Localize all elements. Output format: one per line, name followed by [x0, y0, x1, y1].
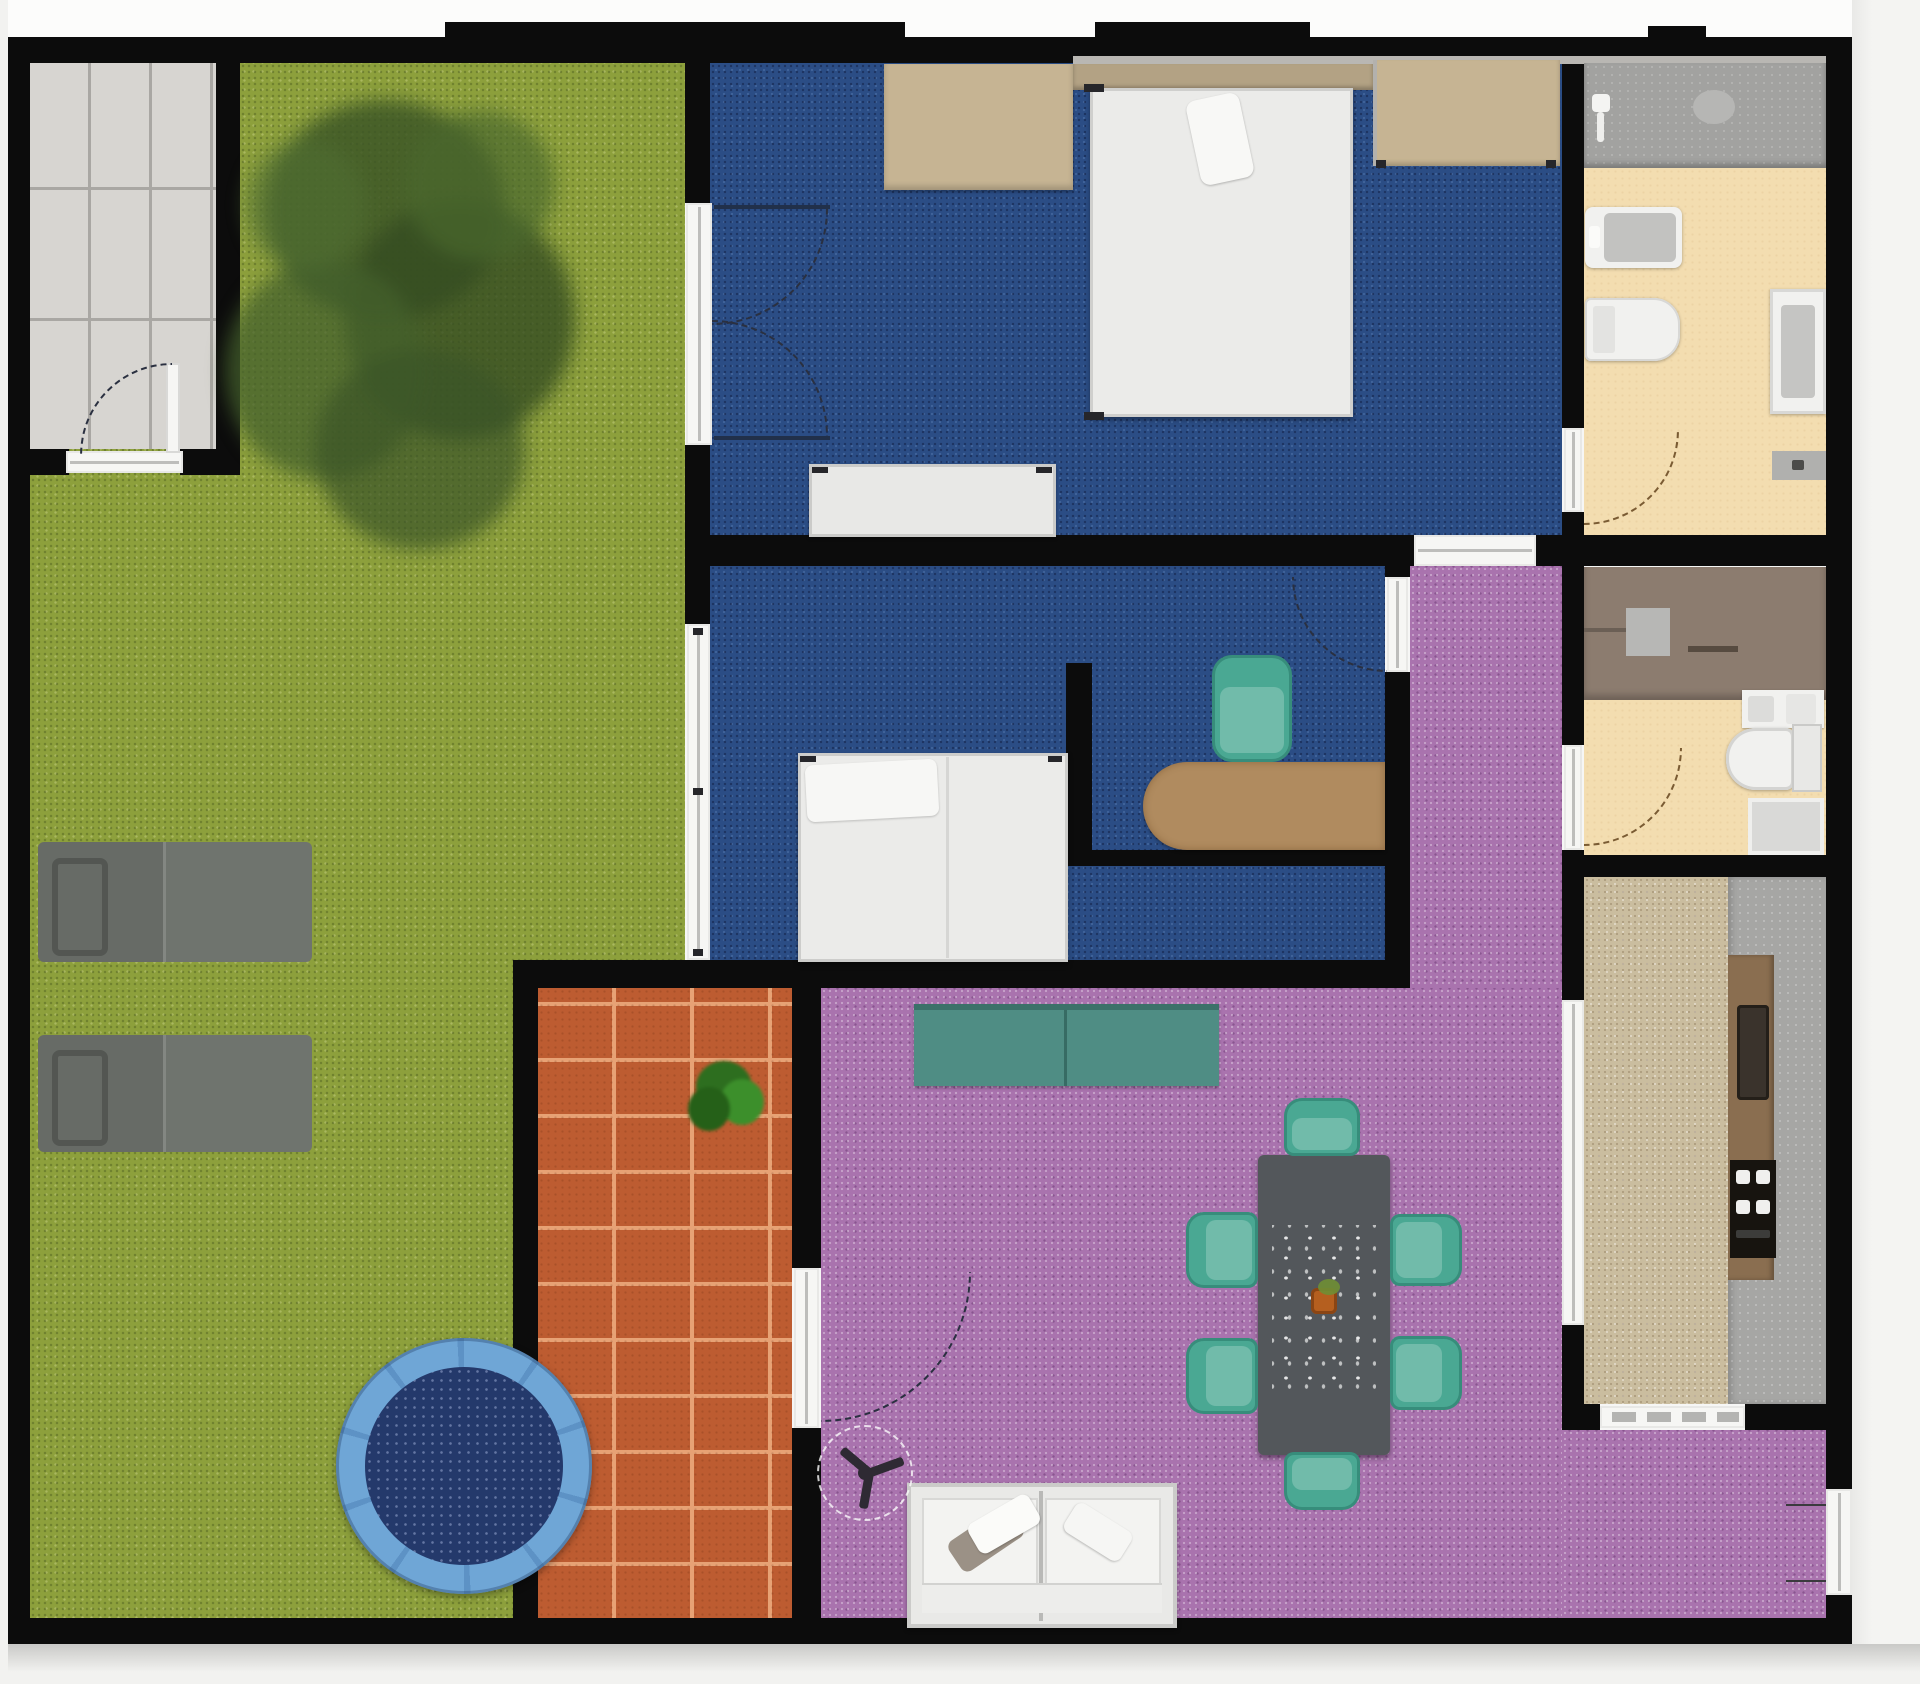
wall-nook-horizontal — [1066, 850, 1385, 866]
bathroom1-door — [1564, 428, 1582, 512]
kitchen-window — [1562, 1000, 1584, 1325]
bed-tick — [1048, 756, 1062, 762]
pool-water — [365, 1367, 563, 1565]
shower-head-icon — [1592, 94, 1610, 112]
bed-tick — [800, 756, 816, 762]
window-sill-line — [1786, 1580, 1826, 1582]
window-sill-line — [1786, 1504, 1826, 1506]
desk-chair — [1212, 655, 1292, 762]
kitchen-sink — [1737, 1005, 1769, 1100]
shed-door — [66, 451, 183, 473]
track-tick — [1717, 1412, 1739, 1422]
bed-tick — [1084, 84, 1104, 92]
shower-unit — [1626, 608, 1670, 656]
margin-top — [0, 0, 1920, 37]
sun-lounger — [38, 842, 312, 962]
bathroom2-door — [1564, 745, 1582, 850]
dining-chair-top — [1284, 1098, 1360, 1156]
wall-shed-bottom — [8, 449, 69, 475]
track-tick — [1647, 1412, 1671, 1422]
teal-bench — [914, 1004, 1219, 1086]
wall-outer-left — [8, 37, 30, 1644]
window-tick — [693, 788, 703, 795]
wall-bathrooms-divider — [1536, 535, 1826, 566]
wall-hallway-left — [1385, 565, 1410, 577]
sun-lounger — [38, 1035, 312, 1152]
wall-bathroom2-kitchen — [1584, 855, 1826, 877]
double-bed — [1090, 88, 1353, 417]
wall-kitchen-bottom — [1562, 1404, 1600, 1430]
floor-plan-canvas — [0, 0, 1920, 1684]
dresser — [884, 64, 1073, 190]
wall-tab — [1095, 22, 1310, 37]
room-hallway — [1410, 566, 1562, 988]
wall-living-top — [513, 960, 1410, 988]
patio-living-door — [794, 1268, 819, 1428]
pillow — [1185, 91, 1256, 186]
track-tick — [1682, 1412, 1706, 1422]
shower-drain — [1693, 90, 1735, 124]
wall-patio-living — [792, 1428, 821, 1618]
towel-bar — [1688, 646, 1738, 652]
bedroom1-french-door — [686, 203, 712, 445]
wall-patio-living — [792, 988, 821, 1268]
ceiling-fan — [817, 1425, 913, 1521]
wall-kitchen-bottom — [1745, 1404, 1826, 1430]
sofa — [907, 1483, 1177, 1628]
patio-plant — [686, 1053, 770, 1139]
wall-outer-right — [1826, 37, 1852, 1644]
wall-bedroom1-left — [685, 63, 710, 203]
room-living-dining-east — [1562, 1430, 1826, 1618]
wall-hallway-right — [1562, 850, 1584, 1000]
wall-tab — [445, 22, 905, 37]
wall-bedroom1-bathroom1 — [1562, 63, 1584, 428]
bed-tick — [1084, 412, 1104, 420]
wall-hallway-right — [1562, 565, 1584, 745]
kitchen-sliding-opening — [1600, 1406, 1745, 1428]
bed-headboard — [1073, 64, 1373, 90]
dining-chair-right — [1390, 1336, 1462, 1410]
closet — [1373, 60, 1560, 166]
shed-door-leaf — [166, 363, 180, 453]
wall-nook-vertical — [1066, 663, 1092, 866]
washbasin-2 — [1742, 690, 1824, 728]
dresser-tick — [1036, 467, 1052, 473]
dining-table — [1258, 1155, 1390, 1455]
hallway-window — [1414, 535, 1536, 566]
stove — [1730, 1160, 1776, 1258]
closet-tick — [1376, 160, 1386, 168]
wall-tab — [1648, 26, 1706, 37]
table-plant-leaves — [1318, 1279, 1340, 1295]
closet-tick — [1546, 160, 1556, 168]
living-room-window — [1826, 1489, 1852, 1595]
margin-bottom — [0, 1644, 1920, 1684]
shower-tray-2 — [1748, 798, 1824, 855]
dining-chair-bottom — [1284, 1452, 1360, 1510]
dining-chair-right — [1390, 1214, 1462, 1286]
shower-rail — [1584, 628, 1626, 632]
dining-chair-left — [1186, 1212, 1258, 1288]
wall-bedrooms-divider — [710, 535, 1414, 566]
hallway-bedroom2-door — [1387, 577, 1408, 672]
shower-area-2 — [1584, 567, 1826, 700]
toilet-2 — [1726, 728, 1794, 790]
dining-chair-left — [1186, 1338, 1258, 1414]
toilet-2-tank — [1792, 724, 1822, 792]
vanity-sink — [1770, 289, 1826, 414]
wall-bedroom1-bathroom1 — [1562, 512, 1584, 536]
pillow — [805, 759, 940, 823]
french-door-leaf — [714, 436, 830, 440]
wall-bedroom2-left — [685, 445, 710, 624]
desk — [1143, 762, 1385, 850]
bathtub — [1585, 207, 1682, 268]
french-door-leaf — [714, 205, 830, 209]
room-shed — [30, 63, 216, 449]
margin-left — [0, 0, 8, 1684]
low-dresser — [809, 464, 1056, 537]
margin-right — [1852, 0, 1920, 1684]
track-tick — [1612, 1412, 1636, 1422]
wall-hallway-left — [1385, 672, 1410, 988]
single-bed — [798, 753, 1068, 962]
shower-hose-icon — [1597, 112, 1604, 142]
toilet — [1585, 298, 1680, 361]
window-tick — [693, 628, 703, 635]
window-tick — [693, 949, 703, 956]
corner-unit — [1772, 451, 1826, 480]
dresser-tick — [812, 467, 828, 473]
tree — [205, 80, 595, 580]
pool — [336, 1338, 592, 1594]
